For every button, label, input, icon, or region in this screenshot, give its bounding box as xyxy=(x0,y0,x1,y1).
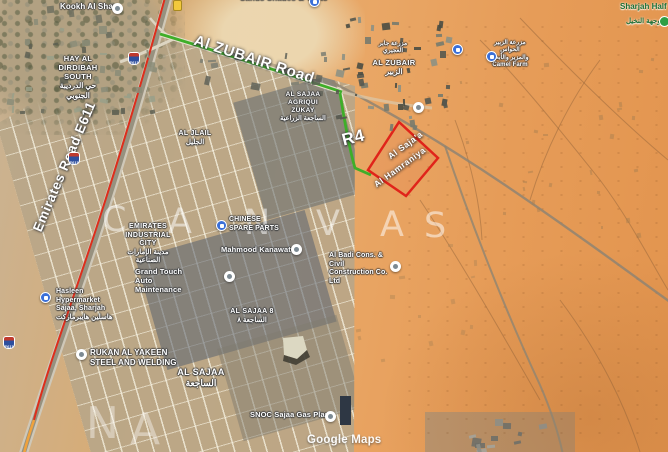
building-block xyxy=(471,275,475,278)
area-emirates-industrial-city[interactable]: EMIRATES INDUSTRIAL CITY مدينة الإمارات … xyxy=(116,223,180,266)
building-block xyxy=(460,329,465,335)
building-block xyxy=(24,52,30,59)
building-block xyxy=(250,82,260,91)
building-block xyxy=(321,52,326,56)
watermark-letter: S xyxy=(424,206,446,246)
map-pin-al-badi[interactable] xyxy=(390,261,401,272)
building-block xyxy=(315,74,322,82)
building-block xyxy=(438,94,443,97)
map-pin-chinese[interactable] xyxy=(216,220,227,231)
poi-al-badi[interactable]: Al Badi Cons. & Civil Construction Co. L… xyxy=(329,252,393,286)
map-pin-green[interactable] xyxy=(659,16,668,27)
building-block xyxy=(46,6,54,13)
building-block xyxy=(6,98,14,105)
building-block xyxy=(523,181,527,184)
building-block xyxy=(390,295,395,299)
poi-mahmood[interactable]: Mahmood Kanawat xyxy=(221,245,291,254)
building-block xyxy=(418,315,421,318)
building-block xyxy=(491,436,498,441)
building-block xyxy=(403,99,405,106)
building-block xyxy=(115,69,121,75)
building-block xyxy=(436,34,442,38)
area-hay-al-dirdibah[interactable]: HAY AL DIRDIBAH SOUTH حي الدرديبة الجنوب… xyxy=(48,54,108,100)
poi-rukan-al-yakeen[interactable]: RUKAN AL YAKEEN STEEL AND WELDING xyxy=(90,348,180,368)
map-canvas[interactable]: C A N V A S N A Al ZUBAIR Road Emirates … xyxy=(0,0,668,452)
area-al-jlail[interactable]: AL JLAIL الجليل xyxy=(174,130,216,147)
building-block xyxy=(69,40,77,47)
plant-structure xyxy=(340,396,351,425)
building-block xyxy=(459,80,462,84)
building-block xyxy=(409,115,412,118)
building-block xyxy=(41,109,44,113)
building-block xyxy=(617,108,622,111)
area-sharjah-half-ar[interactable]: وجهة النخيل xyxy=(626,17,661,25)
building-block xyxy=(29,44,33,50)
building-block xyxy=(26,87,32,91)
building-block xyxy=(136,87,142,93)
building-block xyxy=(548,182,551,187)
building-block xyxy=(597,191,600,194)
building-block xyxy=(543,134,548,136)
building-block xyxy=(358,72,363,76)
map-pin-grand-touch[interactable] xyxy=(224,271,235,282)
e611-shield-icon: E611 xyxy=(68,152,80,165)
map-pin-mahmood[interactable] xyxy=(291,244,302,255)
building-block xyxy=(469,324,472,328)
watermark-letter: V xyxy=(316,204,340,244)
building-block xyxy=(450,298,455,304)
building-block xyxy=(99,26,107,34)
building-block xyxy=(446,85,450,89)
building-block xyxy=(473,260,476,266)
building-block xyxy=(634,168,639,172)
building-block xyxy=(394,83,397,88)
map-pin-kookh[interactable] xyxy=(112,3,123,14)
building-block xyxy=(12,106,15,113)
building-block xyxy=(589,170,592,175)
building-block xyxy=(440,51,446,59)
map-pin-al-zubair[interactable] xyxy=(413,102,424,113)
poi-snoc-gas-plant[interactable]: SNOC Sajaa Gas Plant xyxy=(250,410,332,419)
building-block xyxy=(544,62,549,67)
watermark-letter: A xyxy=(380,205,404,245)
building-block xyxy=(398,85,402,92)
area-sajaa-agri[interactable]: AL SAJAA AGRIQUI ZUKAY الساجعة الزراعية xyxy=(278,91,328,123)
poi-hasleen-hypermarket[interactable]: Hasleen Hypermarket Sajaa, Sharjah هاسلي… xyxy=(56,288,128,322)
e611-shield-icon: E611 xyxy=(128,52,140,65)
building-block xyxy=(121,108,125,114)
building-block xyxy=(625,218,630,223)
watermark-letter: A xyxy=(130,404,160,452)
google-maps-attribution[interactable]: Google Maps xyxy=(307,434,381,446)
building-block xyxy=(609,134,614,139)
building-block xyxy=(324,57,327,62)
route-marker-icon xyxy=(173,0,182,11)
building-block xyxy=(532,200,536,205)
building-block xyxy=(448,244,453,247)
map-pin-farm-1[interactable] xyxy=(452,44,463,55)
building-block xyxy=(398,104,403,111)
building-block xyxy=(368,106,374,109)
area-al-sajaa-8[interactable]: AL SAJAA 8 الساجعة ٨ xyxy=(227,308,277,325)
building-block xyxy=(399,276,405,280)
building-block xyxy=(618,101,622,106)
building-block xyxy=(384,104,390,112)
building-block xyxy=(284,53,287,60)
poi-kookh-al-shay[interactable]: Kookh Al Shay xyxy=(60,2,117,12)
building-block xyxy=(341,54,345,60)
building-block xyxy=(82,47,87,53)
poi-grand-touch[interactable]: Grand Touch Auto Maintenance xyxy=(135,267,185,294)
poi-chinese-spare-parts[interactable]: CHINESE SPARE PARTS xyxy=(229,216,279,233)
building-block xyxy=(534,129,538,132)
map-pin-farm-2[interactable] xyxy=(486,51,497,62)
map-pin-rukan[interactable] xyxy=(76,349,87,360)
map-pin-hasleen[interactable] xyxy=(40,292,51,303)
building-block xyxy=(127,94,131,99)
building-block xyxy=(371,25,374,31)
watermark-letter: N xyxy=(86,398,119,449)
area-al-zubair[interactable]: AL ZUBAIR الزبير xyxy=(372,58,416,76)
building-block xyxy=(430,58,437,66)
area-sharjah-half[interactable]: Sharjah Half xyxy=(620,2,667,11)
building-block xyxy=(365,37,370,44)
building-block xyxy=(503,211,506,214)
building-block xyxy=(345,23,349,28)
building-block xyxy=(95,14,102,22)
area-al-sajaa[interactable]: AL SAJAA الساجعة xyxy=(174,367,228,389)
building-block xyxy=(414,47,422,51)
building-block xyxy=(34,18,38,24)
building-block xyxy=(536,207,539,211)
building-block xyxy=(502,423,510,429)
building-block xyxy=(358,17,362,24)
building-block xyxy=(112,110,119,115)
building-block xyxy=(19,111,24,114)
e611-shield-icon: E611 xyxy=(3,336,15,349)
building-block xyxy=(438,21,443,29)
building-block xyxy=(381,23,389,30)
poi-jaber-farm[interactable]: مزرعة جابر العجيري xyxy=(372,41,414,56)
building-block xyxy=(639,70,643,73)
building-block xyxy=(200,59,204,63)
map-pin-snoc[interactable] xyxy=(325,411,336,422)
building-block xyxy=(636,232,641,238)
building-block xyxy=(53,42,58,45)
building-block xyxy=(211,62,218,68)
building-block xyxy=(389,123,393,130)
